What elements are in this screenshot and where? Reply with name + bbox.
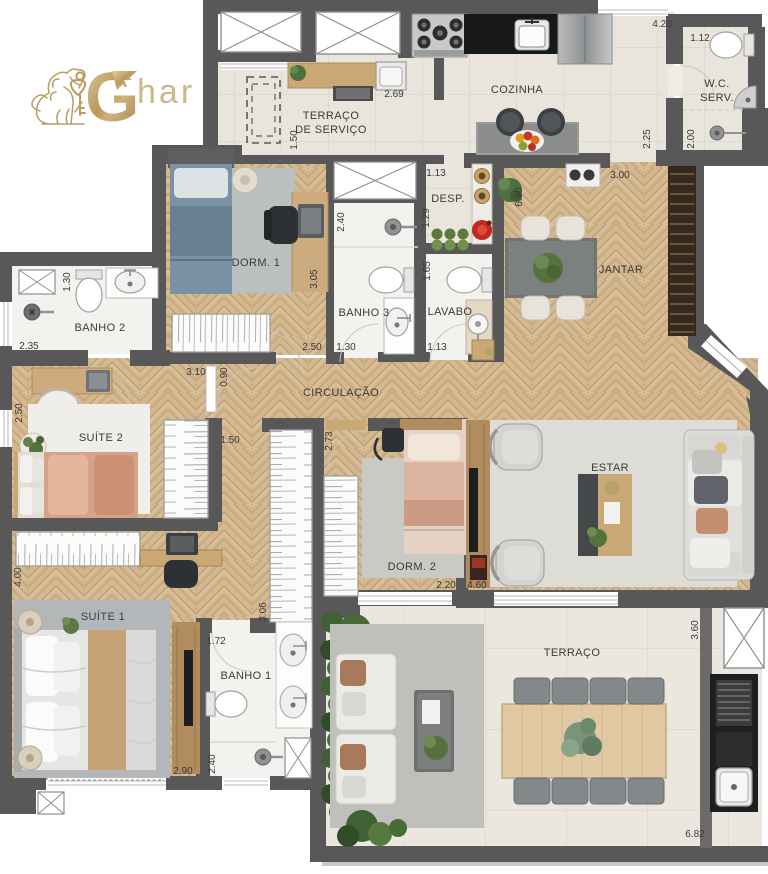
svg-text:2.50: 2.50 — [14, 403, 25, 423]
svg-text:2.25: 2.25 — [642, 129, 653, 149]
svg-text:1.30: 1.30 — [336, 342, 356, 353]
svg-text:BANHO 1: BANHO 1 — [220, 670, 271, 682]
svg-text:4.20: 4.20 — [652, 19, 672, 30]
svg-text:2.00: 2.00 — [686, 129, 697, 149]
svg-text:CIRCULAÇÃO: CIRCULAÇÃO — [303, 386, 379, 399]
svg-text:JANTAR: JANTAR — [599, 264, 643, 276]
svg-text:2.40: 2.40 — [336, 212, 347, 232]
svg-text:DESP.: DESP. — [431, 193, 465, 205]
svg-text:6.82: 6.82 — [685, 829, 705, 840]
svg-text:3.10: 3.10 — [186, 367, 206, 378]
svg-text:4.60: 4.60 — [467, 580, 487, 591]
svg-text:1.30: 1.30 — [62, 272, 73, 292]
svg-text:2.35: 2.35 — [19, 341, 39, 352]
svg-text:ESTAR: ESTAR — [591, 462, 629, 474]
svg-text:0.90: 0.90 — [219, 367, 230, 387]
svg-text:3.60: 3.60 — [690, 620, 701, 640]
svg-text:TERRAÇO: TERRAÇO — [303, 110, 360, 122]
svg-text:1.13: 1.13 — [426, 168, 446, 179]
svg-text:1.13: 1.13 — [427, 342, 447, 353]
svg-text:2.40: 2.40 — [207, 754, 218, 774]
svg-text:2.90: 2.90 — [173, 766, 193, 777]
svg-text:1.12: 1.12 — [690, 33, 710, 44]
svg-text:DORM. 2: DORM. 2 — [388, 561, 437, 573]
svg-text:DE SERVIÇO: DE SERVIÇO — [295, 124, 367, 136]
svg-text:3.06: 3.06 — [258, 602, 269, 622]
svg-text:G: G — [85, 58, 139, 136]
svg-text:TERRAÇO: TERRAÇO — [544, 647, 601, 659]
svg-text:6.90: 6.90 — [514, 187, 525, 207]
svg-text:SUÍTE 1: SUÍTE 1 — [81, 610, 125, 623]
svg-text:DORM. 1: DORM. 1 — [232, 257, 281, 269]
svg-text:2.69: 2.69 — [384, 89, 404, 100]
svg-text:1.50: 1.50 — [220, 435, 240, 446]
svg-text:LAVABO: LAVABO — [428, 306, 473, 318]
svg-text:2.73: 2.73 — [324, 431, 335, 451]
svg-text:1.65: 1.65 — [422, 261, 433, 281]
svg-text:SUÍTE 2: SUÍTE 2 — [79, 431, 123, 444]
svg-text:3.05: 3.05 — [309, 269, 320, 289]
svg-text:COZINHA: COZINHA — [491, 84, 544, 96]
svg-text:SERV.: SERV. — [700, 92, 734, 104]
svg-text:2.50: 2.50 — [302, 342, 322, 353]
svg-text:3.00: 3.00 — [610, 170, 630, 181]
svg-text:2.20: 2.20 — [436, 580, 456, 591]
svg-text:1.72: 1.72 — [206, 636, 226, 647]
svg-text:W.C.: W.C. — [704, 78, 729, 90]
svg-text:1.29: 1.29 — [421, 208, 432, 228]
svg-text:BANHO 3: BANHO 3 — [338, 307, 389, 319]
svg-text:BANHO 2: BANHO 2 — [74, 322, 125, 334]
svg-text:4.00: 4.00 — [13, 567, 24, 587]
svg-text:1.50: 1.50 — [289, 130, 300, 150]
svg-text:har: har — [137, 73, 195, 111]
